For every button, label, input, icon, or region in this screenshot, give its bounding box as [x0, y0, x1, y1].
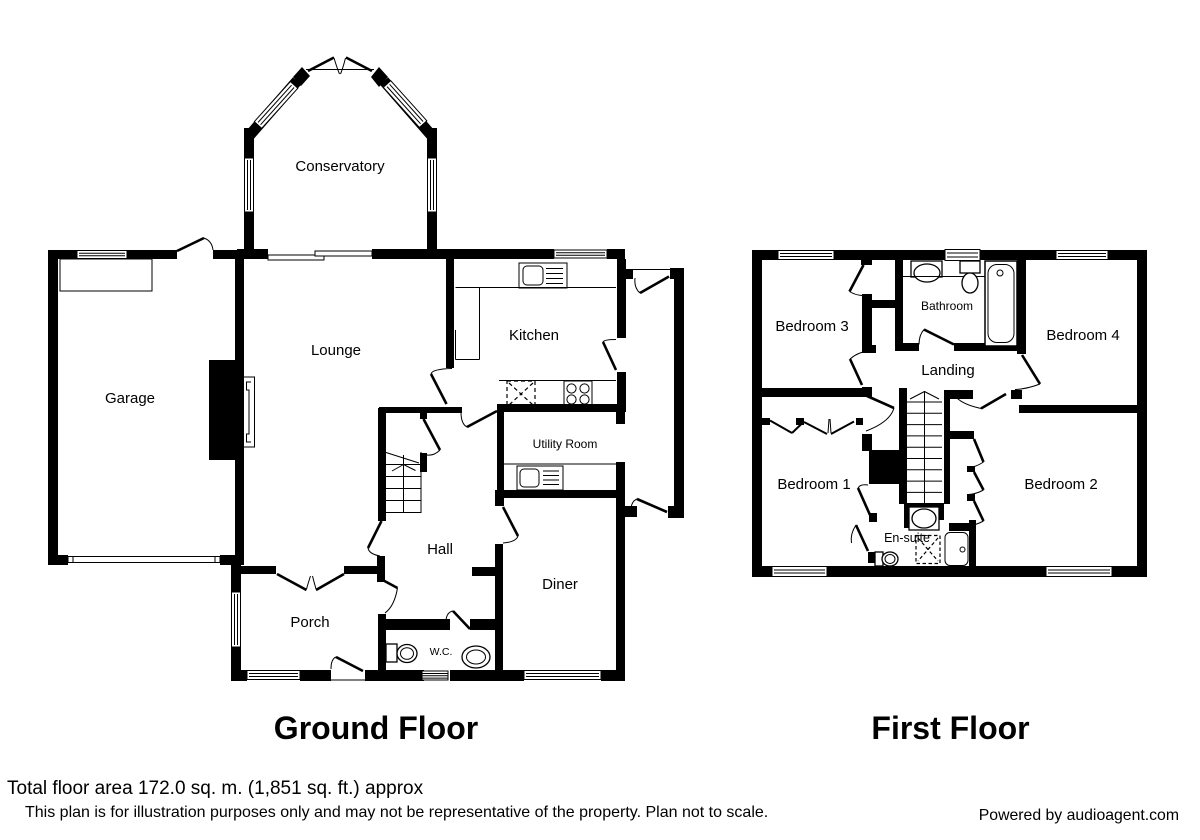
svg-text:En-suite: En-suite	[884, 531, 930, 545]
svg-text:Ground Floor: Ground Floor	[274, 710, 478, 746]
svg-text:Bathroom: Bathroom	[921, 299, 973, 313]
svg-text:Bedroom 3: Bedroom 3	[775, 318, 848, 335]
svg-text:Hall: Hall	[427, 541, 453, 558]
svg-text:Total floor area 172.0 sq. m.: Total floor area 172.0 sq. m. (1,851 sq.…	[7, 778, 424, 799]
svg-text:Bedroom 1: Bedroom 1	[777, 476, 850, 493]
svg-text:Landing: Landing	[921, 362, 974, 379]
svg-text:Bedroom 4: Bedroom 4	[1046, 327, 1119, 344]
svg-text:Utility Room: Utility Room	[533, 437, 598, 451]
svg-text:Kitchen: Kitchen	[509, 327, 559, 344]
svg-text:Diner: Diner	[542, 576, 578, 593]
svg-text:Garage: Garage	[105, 390, 155, 407]
svg-text:This plan is for illustration: This plan is for illustration purposes o…	[25, 804, 768, 821]
svg-text:Porch: Porch	[290, 614, 329, 631]
svg-text:W.C.: W.C.	[430, 646, 453, 658]
svg-text:Lounge: Lounge	[311, 342, 361, 359]
svg-text:First Floor: First Floor	[871, 710, 1029, 746]
svg-text:Bedroom 2: Bedroom 2	[1024, 476, 1097, 493]
svg-text:Powered by audioagent.com: Powered by audioagent.com	[979, 807, 1179, 824]
svg-text:Conservatory: Conservatory	[295, 158, 385, 175]
